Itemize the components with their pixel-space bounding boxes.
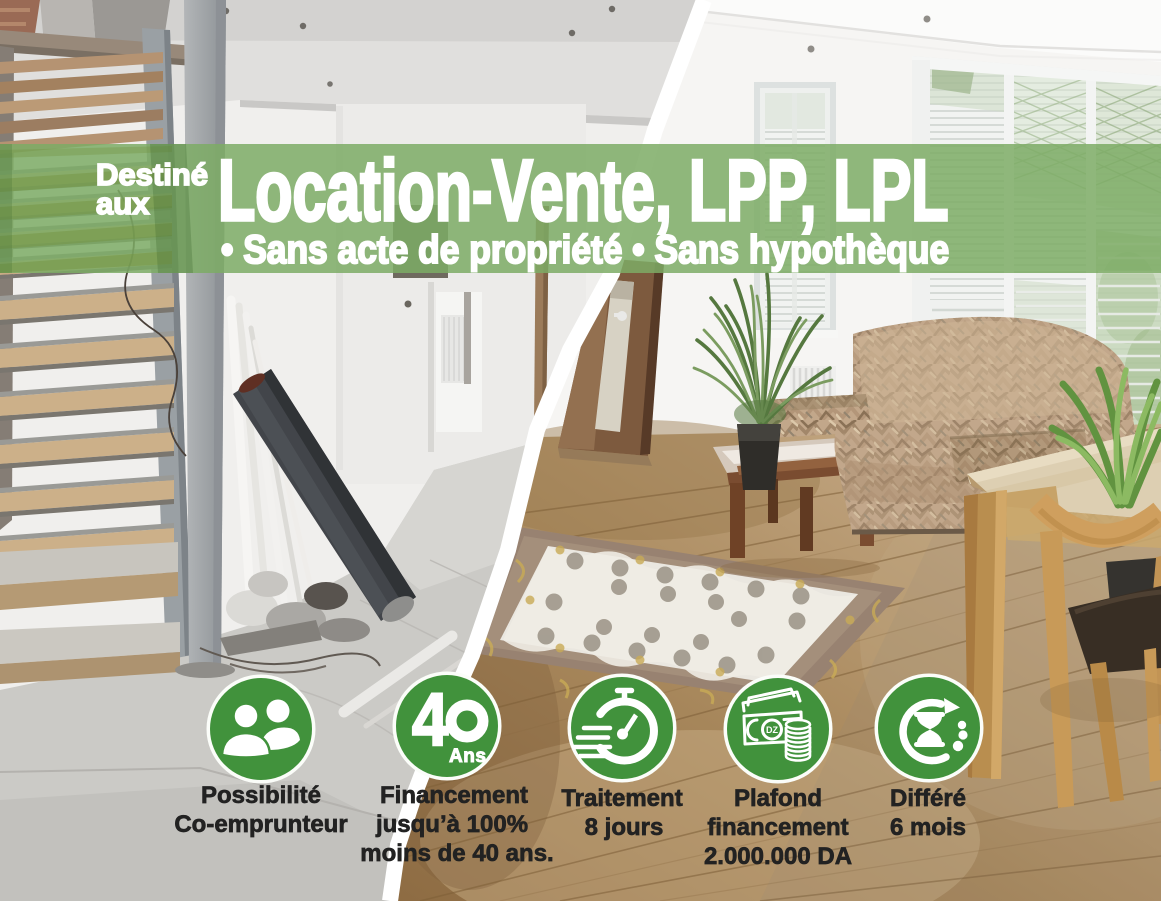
- svg-text:Financement: Financement: [380, 782, 528, 809]
- svg-text:8 jours: 8 jours: [585, 814, 664, 841]
- svg-text:jusqu’à 100%: jusqu’à 100%: [375, 811, 528, 838]
- svg-text:aux: aux: [96, 186, 150, 221]
- svg-text:4: 4: [412, 678, 448, 761]
- svg-text:Ans: Ans: [449, 746, 486, 767]
- svg-text:DZ: DZ: [766, 725, 778, 735]
- svg-text:Plafond: Plafond: [734, 785, 822, 812]
- svg-text:Co-emprunteur: Co-emprunteur: [174, 811, 347, 838]
- svg-text:• Sans acte de propriété • San: • Sans acte de propriété • Sans hypothèq…: [221, 227, 949, 272]
- svg-text:6 mois: 6 mois: [890, 814, 966, 841]
- svg-text:financement: financement: [707, 814, 848, 841]
- svg-text:Location-Vente, LPP, LPL: Location-Vente, LPP, LPL: [218, 143, 949, 239]
- svg-text:Possibilité: Possibilité: [201, 782, 321, 809]
- svg-text:2.000.000 DA: 2.000.000 DA: [704, 843, 852, 870]
- svg-text:moins de 40 ans.: moins de 40 ans.: [360, 840, 553, 867]
- svg-text:Différé: Différé: [890, 785, 966, 812]
- svg-text:Traitement: Traitement: [561, 785, 682, 812]
